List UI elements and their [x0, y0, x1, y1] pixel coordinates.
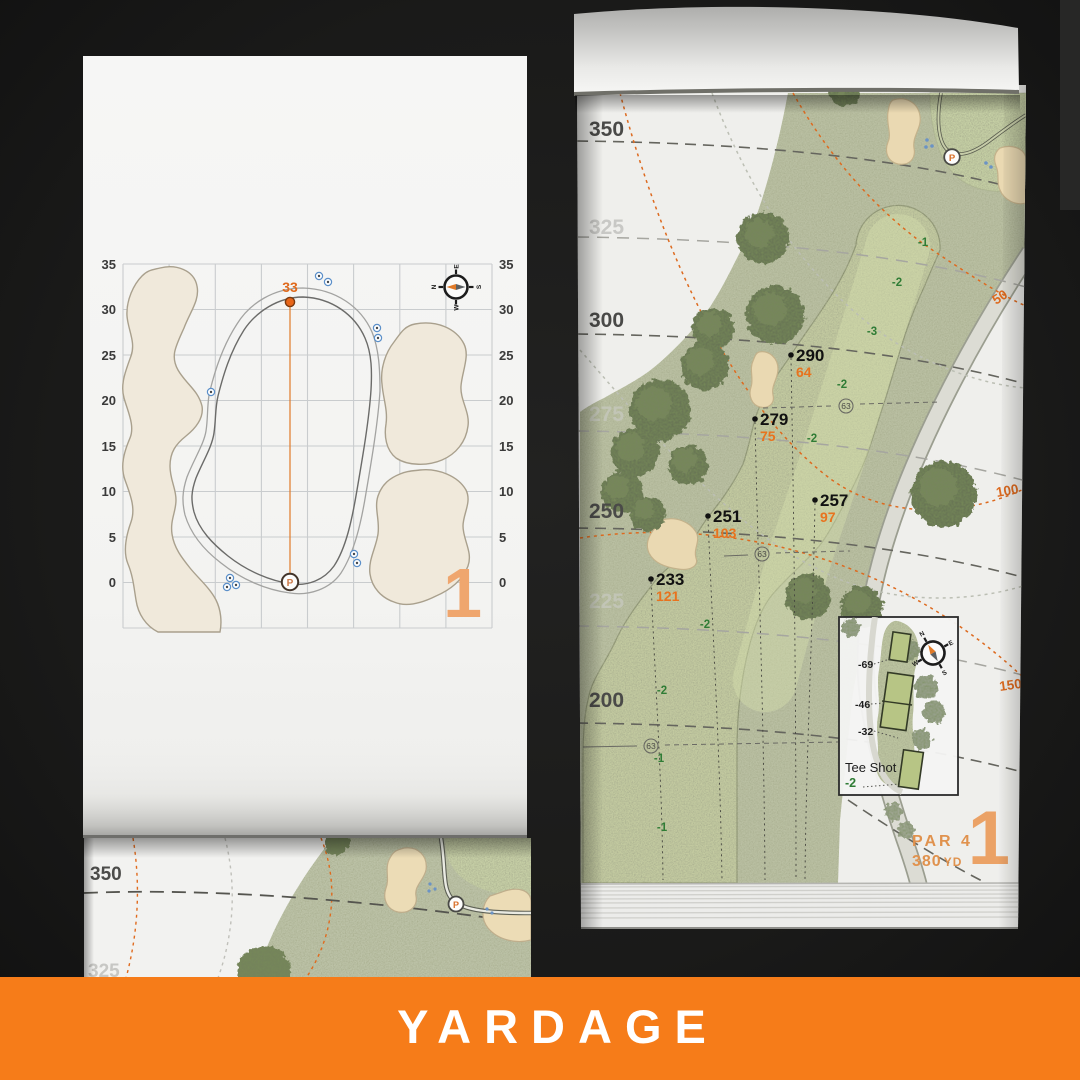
svg-text:-2: -2: [657, 685, 667, 697]
svg-text:25: 25: [102, 348, 116, 363]
svg-text:15: 15: [499, 439, 513, 454]
svg-text:233: 233: [656, 570, 684, 589]
svg-text:-1: -1: [657, 822, 668, 834]
svg-text:-2: -2: [807, 433, 817, 445]
svg-text:20: 20: [102, 393, 116, 408]
svg-text:P: P: [287, 578, 294, 589]
svg-text:-1: -1: [918, 237, 929, 249]
svg-text:-32: -32: [858, 726, 873, 738]
svg-text:257: 257: [820, 491, 848, 510]
svg-text:35: 35: [102, 257, 116, 272]
svg-text:5: 5: [499, 530, 506, 545]
svg-text:15: 15: [102, 439, 116, 454]
svg-text:350: 350: [90, 864, 122, 885]
svg-text:-2: -2: [837, 379, 847, 391]
svg-text:97: 97: [820, 509, 836, 525]
svg-text:103: 103: [713, 525, 737, 541]
svg-text:75: 75: [760, 428, 776, 444]
svg-text:10: 10: [102, 484, 116, 499]
svg-text:S: S: [476, 284, 483, 289]
svg-text:35: 35: [499, 257, 513, 272]
svg-text:-2: -2: [845, 776, 856, 790]
svg-text:10: 10: [499, 484, 513, 499]
svg-text:30: 30: [499, 302, 513, 317]
svg-text:25: 25: [499, 348, 513, 363]
svg-text:0: 0: [499, 575, 506, 590]
svg-text:63: 63: [757, 549, 767, 559]
svg-text:33: 33: [282, 279, 298, 295]
svg-text:E: E: [453, 264, 460, 269]
svg-text:64: 64: [796, 364, 812, 380]
svg-text:-2: -2: [700, 619, 710, 631]
svg-text:-69: -69: [858, 659, 873, 671]
svg-text:63: 63: [646, 741, 656, 751]
svg-text:PAR 4: PAR 4: [912, 833, 973, 850]
svg-text:380YD: 380YD: [912, 853, 962, 870]
svg-text:290: 290: [796, 346, 824, 365]
svg-text:W: W: [453, 304, 460, 311]
svg-text:20: 20: [499, 393, 513, 408]
svg-text:63: 63: [841, 401, 851, 411]
svg-text:N: N: [431, 284, 438, 289]
svg-text:121: 121: [656, 588, 680, 604]
svg-text:-46: -46: [855, 699, 870, 711]
svg-text:-3: -3: [867, 326, 877, 338]
svg-text:30: 30: [102, 302, 116, 317]
svg-text:YARDAGE: YARDAGE: [397, 1000, 719, 1053]
svg-text:-2: -2: [892, 277, 902, 289]
svg-text:P: P: [453, 900, 459, 910]
svg-text:251: 251: [713, 507, 741, 526]
svg-text:0: 0: [109, 575, 116, 590]
svg-text:P: P: [949, 153, 956, 164]
svg-text:1: 1: [443, 554, 482, 632]
svg-text:-1: -1: [654, 753, 665, 765]
svg-text:5: 5: [109, 530, 116, 545]
svg-text:Tee Shot: Tee Shot: [845, 760, 897, 775]
svg-text:279: 279: [760, 410, 788, 429]
